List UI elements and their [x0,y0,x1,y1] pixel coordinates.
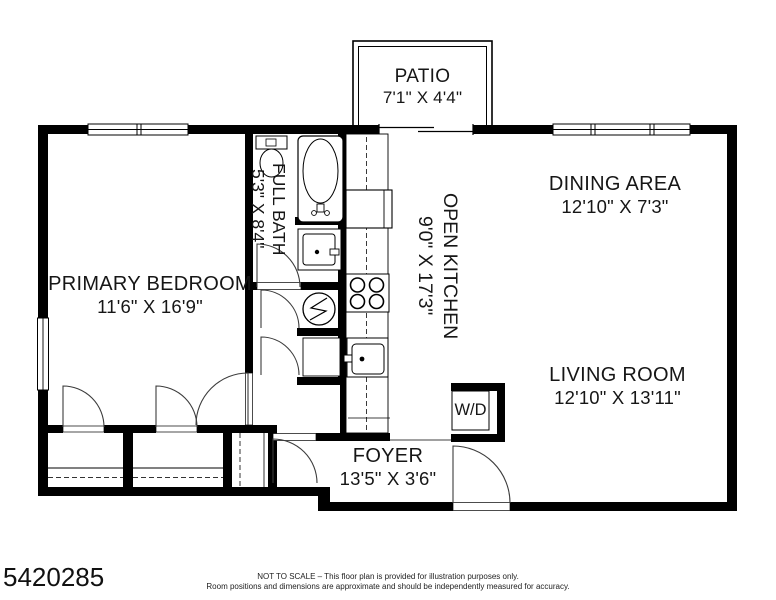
patio-name: PATIO [353,65,492,88]
room-label-kitchen: OPEN KITCHEN 9'0" X 17'3" [412,160,462,372]
living-dims: 12'10" X 13'11" [495,387,740,410]
dining-window [553,124,690,135]
foyer-name: FOYER [308,444,468,468]
water-heater-icon [303,293,335,325]
refrigerator-icon [346,190,392,228]
bedroom-top-window [88,124,188,135]
vanity-sink-icon [298,229,341,270]
living-name: LIVING ROOM [495,363,740,387]
room-label-bath: FULL BATH 5'3" X 8'4" [247,133,289,285]
bedroom-dims: 11'6" X 16'9" [42,296,258,319]
room-label-foyer: FOYER 13'5" X 3'6" [308,444,468,491]
stove-icon [346,274,389,312]
room-label-patio: PATIO 7'1" X 4'4" [353,65,492,109]
disclaimer-line-1: NOT TO SCALE – This floor plan is provid… [0,572,776,581]
room-label-living: LIVING ROOM 12'10" X 13'11" [495,363,740,410]
patio-dims: 7'1" X 4'4" [353,88,492,109]
kitchen-sink-icon [344,338,388,377]
bathtub-icon [298,136,343,222]
disclaimer-line-2: Room positions and dimensions are approx… [0,582,776,591]
dining-name: DINING AREA [495,172,735,196]
kitchen-name: OPEN KITCHEN [437,160,462,372]
patio-sliding-door [379,124,473,135]
room-label-dining: DINING AREA 12'10" X 7'3" [495,172,735,219]
foyer-dims: 13'5" X 3'6" [308,468,468,491]
bedroom-side-window [38,318,49,390]
floor-plan: PATIO 7'1" X 4'4" DINING AREA 12'10" X 7… [0,0,776,600]
washer-dryer-label: W/D [450,401,491,420]
bath-dims: 5'3" X 8'4" [247,133,268,285]
bath-name: FULL BATH [268,133,289,285]
linen-closet [303,338,340,376]
dining-dims: 12'10" X 7'3" [495,196,735,219]
bedroom-name: PRIMARY BEDROOM [42,272,258,296]
room-label-bedroom: PRIMARY BEDROOM 11'6" X 16'9" [42,272,258,319]
listing-id: 5420285 [3,562,104,593]
kitchen-dims: 9'0" X 17'3" [412,160,437,372]
